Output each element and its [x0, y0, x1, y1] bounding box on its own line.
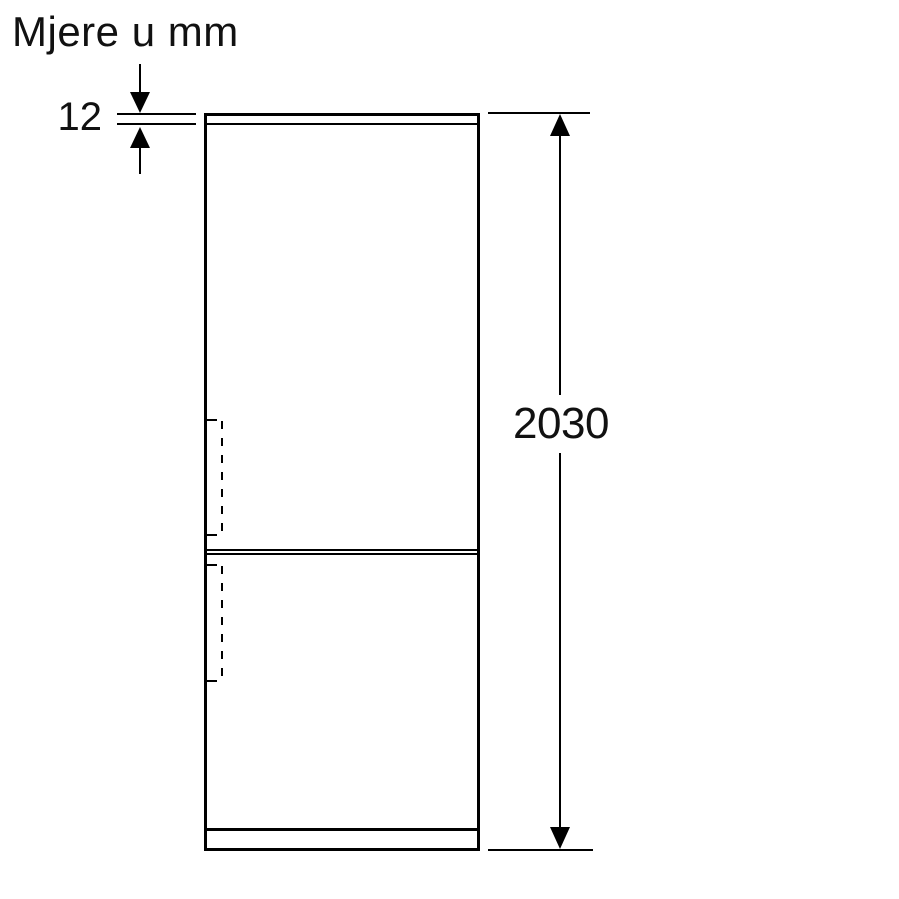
dim-arrow-shaft	[139, 64, 141, 93]
dim-extension-line	[488, 112, 590, 114]
door-divider-line-lower	[206, 553, 478, 555]
dim-arrow-shaft	[559, 453, 561, 828]
handle-extent-tick	[205, 534, 217, 536]
appliance-outline	[204, 113, 480, 851]
dimension-label-top-thickness: 12	[38, 97, 102, 137]
door-divider-line-upper	[206, 549, 478, 551]
dim-extension-line	[488, 849, 593, 851]
plinth-line	[206, 828, 478, 831]
dimension-diagram: Mjere u mm 12 2030	[0, 0, 899, 899]
handle-extent-tick	[205, 680, 217, 682]
handle-extent-tick	[205, 564, 217, 566]
arrow-down-icon	[130, 92, 150, 113]
handle-hidden-line-lower	[221, 566, 223, 677]
arrow-up-icon	[550, 114, 570, 136]
page-title: Mjere u mm	[12, 8, 239, 56]
dim-arrow-shaft	[559, 135, 561, 395]
dim-arrow-shaft	[139, 148, 141, 174]
dimension-label-height: 2030	[508, 402, 614, 446]
top-panel-line	[206, 123, 478, 125]
dim-extension-line	[117, 113, 196, 115]
handle-extent-tick	[205, 419, 217, 421]
handle-hidden-line-upper	[221, 421, 223, 534]
arrow-down-icon	[550, 827, 570, 849]
dim-extension-line	[117, 123, 196, 125]
arrow-up-icon	[130, 127, 150, 148]
